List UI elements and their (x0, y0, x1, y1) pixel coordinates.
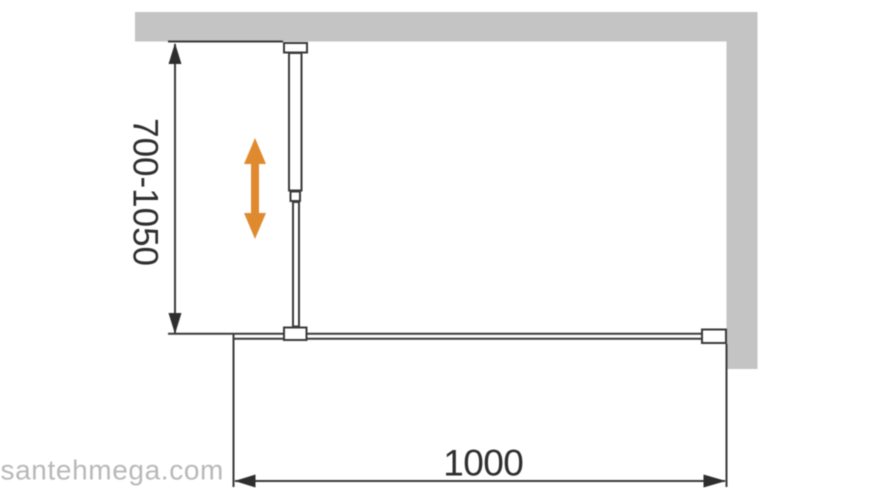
svg-text:1000: 1000 (443, 442, 523, 483)
svg-text:700-1050: 700-1050 (125, 118, 164, 266)
svg-text:santehmega.com: santehmega.com (1, 454, 224, 485)
